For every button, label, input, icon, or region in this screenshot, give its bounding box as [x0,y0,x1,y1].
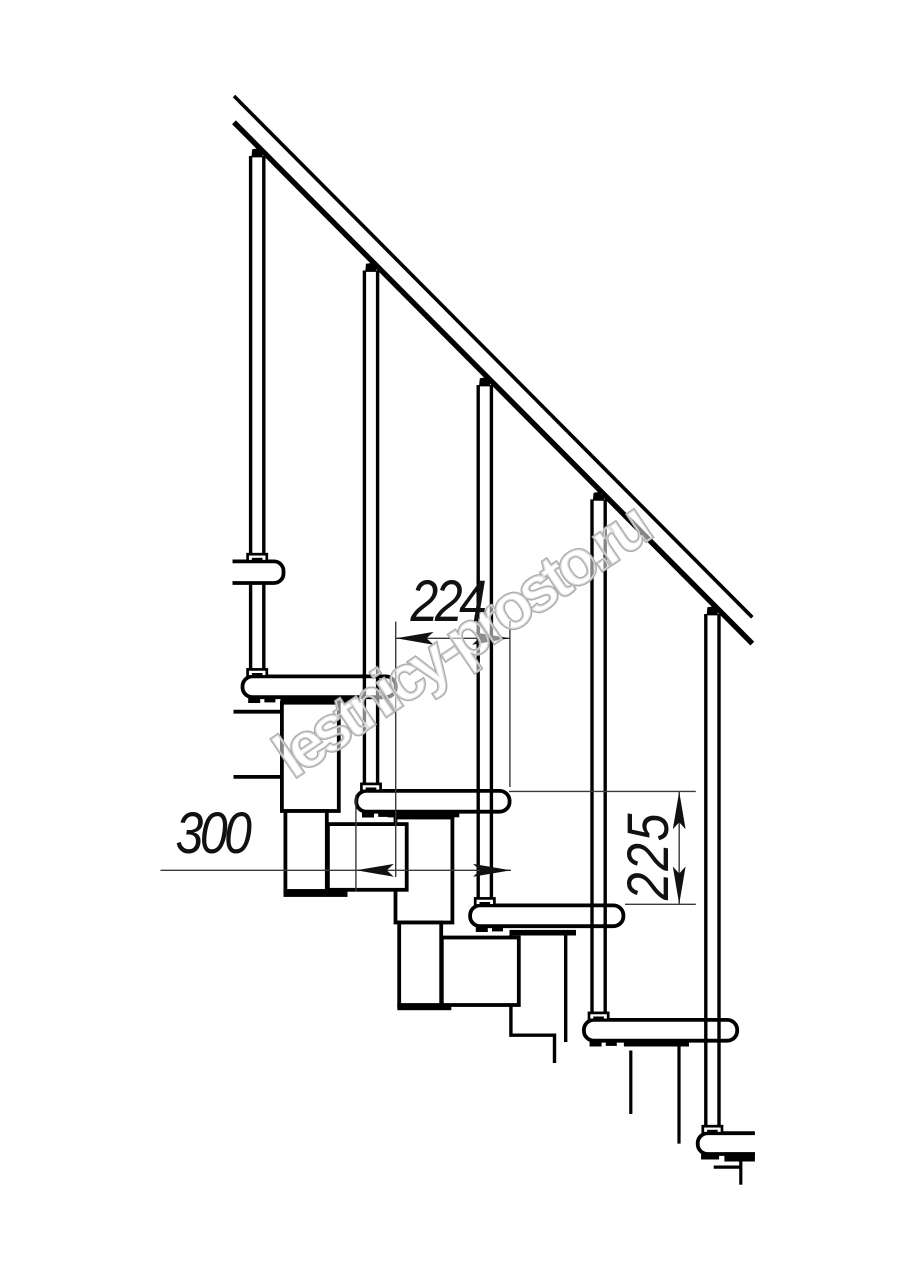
svg-text:224: 224 [410,570,486,634]
svg-text:300: 300 [176,802,252,866]
svg-text:225: 225 [617,812,681,901]
